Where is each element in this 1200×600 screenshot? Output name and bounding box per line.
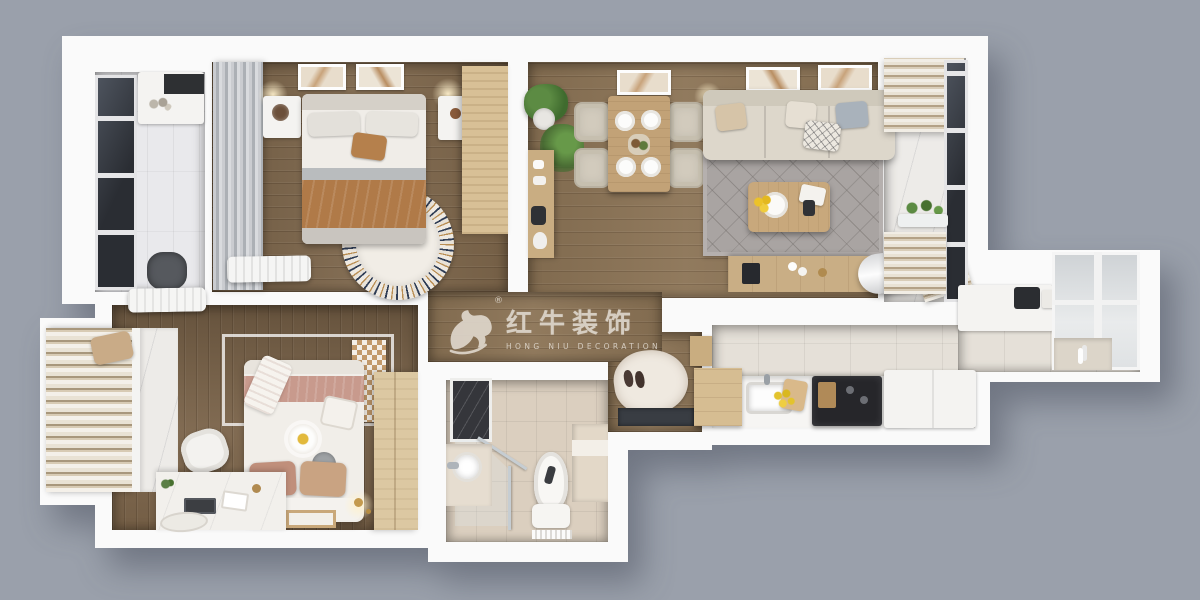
console-decor-dish (533, 176, 546, 185)
master-bed-headboard (302, 94, 426, 110)
sofa-pillow-diamond (802, 120, 841, 152)
coffee-table-flowers (752, 194, 774, 214)
console-teapot-white (533, 232, 547, 249)
desk-plant (160, 478, 174, 490)
stove-utensil-box (818, 382, 836, 408)
master-wardrobe (462, 66, 508, 234)
console-decor-cup (533, 160, 544, 169)
shower-glass-frame-vertical (508, 466, 511, 530)
brand-name-en: HONG NIU DECORATION (506, 342, 661, 351)
living-wall-art-right (818, 65, 872, 91)
master-pillow-left (308, 111, 361, 137)
kitchen-microwave (1014, 287, 1040, 309)
kitchen-step-cabinets (884, 370, 976, 428)
dining-wall-art (617, 70, 671, 95)
console-candles (788, 262, 797, 271)
dining-chair-3 (668, 102, 704, 142)
place-setting-4 (641, 157, 661, 177)
kitchen-faucet (764, 374, 770, 385)
master-foot-bench (302, 228, 426, 244)
master-wall-art-right (356, 64, 404, 90)
bedroom2-ac-unit (128, 287, 206, 312)
shoe-cabinet (694, 368, 742, 426)
stove-burners (846, 386, 854, 394)
apartment-footprint: ® 红牛装饰 HONG NIU DECORATION (0, 0, 1200, 600)
shower-marble-wall (450, 378, 492, 442)
console-books (742, 263, 760, 284)
console-kettle-dark (531, 206, 546, 225)
balcony-curtain-bottom (884, 232, 946, 294)
watermark-text-block: 红牛装饰 HONG NIU DECORATION (506, 311, 661, 350)
window-shelf-line (1052, 300, 1140, 305)
decor-stones (146, 96, 172, 112)
sofa-cushion-seam-1 (764, 106, 766, 158)
bath-ledge-shelf (572, 440, 608, 456)
laundry-basket (147, 252, 187, 290)
balcony-planter-box (898, 214, 948, 227)
bedroom2-wardrobe (374, 372, 418, 530)
console-brass-decor (818, 268, 827, 277)
place-setting-2 (641, 110, 661, 130)
master-pillow-right (366, 111, 419, 137)
bath-ledge (572, 424, 608, 502)
place-setting-1 (615, 111, 635, 131)
floorplan-render: ® 红牛装饰 HONG NIU DECORATION (0, 0, 1200, 600)
nightstand-bowl (450, 108, 461, 119)
entry-upper-cabinet (690, 336, 712, 366)
place-setting-3 (616, 157, 636, 177)
master-radiator (227, 255, 311, 282)
toilet-tank (532, 504, 570, 528)
coffee-table-bottle (803, 200, 815, 216)
bedroom2-balcony-marble (140, 328, 178, 492)
watermark: ® 红牛装饰 HONG NIU DECORATION (444, 296, 644, 366)
brand-name-cn: 红牛装饰 (506, 311, 661, 338)
dining-chair-2 (574, 148, 610, 188)
bedside-gold-decor (354, 498, 363, 507)
utility-cabinet-top (164, 74, 204, 94)
bay-faucet (1078, 348, 1083, 364)
tablet (221, 490, 249, 511)
bath-faucet (447, 462, 459, 469)
towel-rack (532, 530, 572, 539)
dining-chair-1 (574, 102, 610, 142)
lemons (772, 388, 796, 410)
desk-clock (252, 484, 261, 493)
living-wall-art-left (746, 67, 800, 92)
window-bay-counter (1054, 338, 1112, 370)
master-wall-art-left (298, 64, 346, 90)
entry-doormat (618, 408, 694, 426)
dining-chair-4 (668, 148, 704, 188)
bull-icon (444, 306, 496, 356)
utility-window (95, 75, 137, 290)
bed2-pillow-right (299, 461, 347, 497)
balcony-windows (944, 60, 968, 302)
sofa-pillow-tan (715, 102, 748, 131)
table-centerpiece (628, 134, 650, 155)
master-throw-pillow (350, 132, 387, 161)
master-blanket (302, 180, 426, 228)
leaning-frame-right (286, 510, 336, 528)
daisy-decor (288, 424, 318, 454)
registered-mark: ® (494, 296, 503, 306)
nightstand-decor-plate (272, 104, 289, 121)
master-sheet-band (302, 168, 426, 180)
